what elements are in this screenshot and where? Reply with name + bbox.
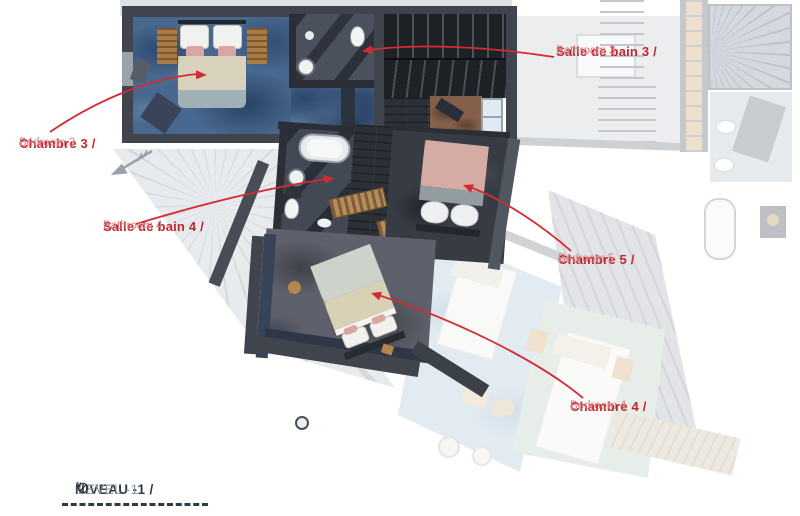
wall (289, 80, 384, 88)
window-mullion (481, 116, 503, 118)
pouf (438, 436, 460, 458)
stool (767, 214, 779, 226)
label-chambre-5-en: Bedroom 5 (558, 253, 614, 265)
bed-pillow (420, 200, 450, 225)
stair-flight-upper (384, 14, 506, 58)
north-indicator-icon (77, 482, 89, 494)
faded-fan-staircase (708, 4, 792, 90)
bed (415, 140, 489, 242)
toilet (716, 120, 736, 134)
bath-mat (317, 218, 332, 228)
toilet (714, 158, 734, 172)
label-chambre-3-en: Bedroom 3 (19, 137, 75, 149)
drain-fixture (305, 31, 314, 40)
bathroom4-floor (280, 128, 357, 241)
washbasin (287, 168, 306, 187)
floor-plan-canvas: Chambre 3 / Bedroom 3 Salle de bain 3 / … (0, 0, 800, 516)
vanity-cabinet (285, 188, 302, 199)
bathtub-basin (306, 138, 343, 158)
label-bathroom-4-en: Bathroom 4 (103, 220, 162, 232)
title-underline (62, 503, 208, 506)
nightstand (247, 28, 267, 64)
pouf (472, 446, 492, 466)
bed-foot-throw (178, 90, 246, 108)
bed-duvet (178, 56, 246, 92)
wall (506, 6, 517, 142)
label-chambre-4-en: Bedroom 4 (570, 400, 626, 412)
wall (374, 6, 384, 138)
stair-flight-lower (384, 60, 506, 98)
bed-headboard (178, 20, 246, 24)
toilet (350, 26, 365, 47)
bed-pillow (449, 203, 479, 228)
toilet (283, 198, 299, 220)
bed-duvet (420, 140, 488, 192)
balcony-railing (598, 86, 656, 148)
balcony-railing (600, 0, 644, 84)
faded-bathtub (704, 198, 736, 260)
faded-ladder-corridor (686, 0, 702, 152)
stool (288, 281, 301, 294)
nightstand (157, 28, 177, 64)
label-bathroom-3-en: Bathroom 3 (556, 45, 615, 57)
washbasin (297, 58, 315, 76)
